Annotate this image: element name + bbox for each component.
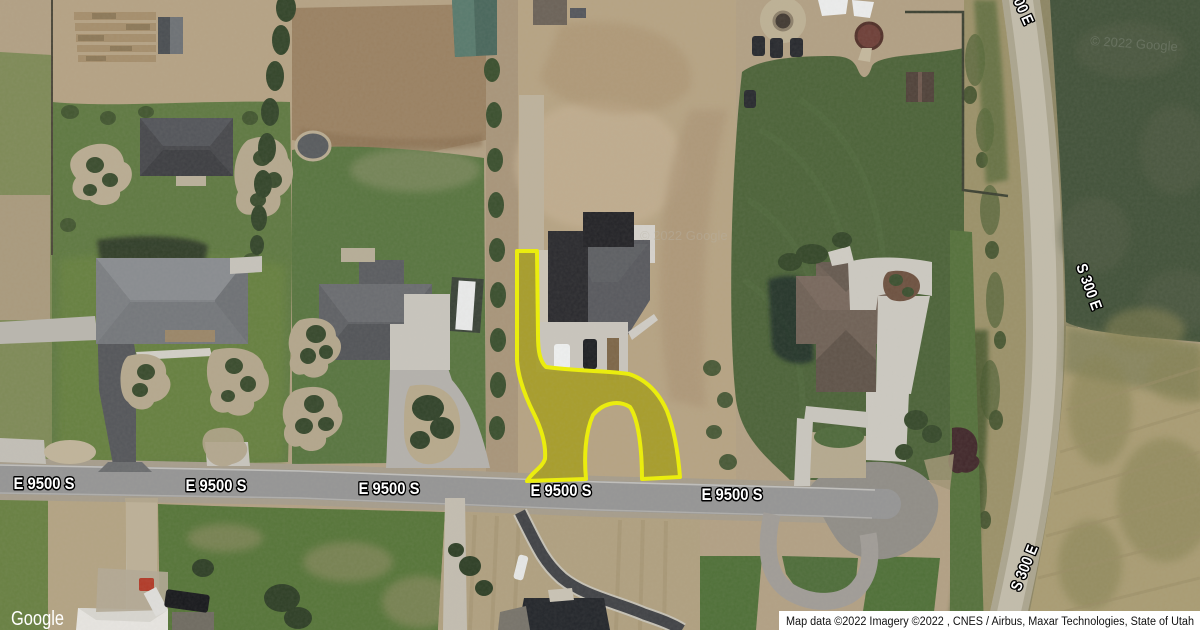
svg-text:E 9500 S: E 9500 S <box>359 479 420 498</box>
svg-text:E 9500 S: E 9500 S <box>186 476 247 495</box>
svg-text:E 9500 S: E 9500 S <box>531 481 592 500</box>
svg-text:Map data ©2022 Imagery ©2022 ,: Map data ©2022 Imagery ©2022 , CNES / Ai… <box>786 616 1194 628</box>
svg-text:E 9500 S: E 9500 S <box>14 474 75 493</box>
svg-text:© 2022 Google: © 2022 Google <box>640 228 728 243</box>
svg-text:E 9500 S: E 9500 S <box>702 485 763 504</box>
svg-text:Google: Google <box>11 608 64 630</box>
